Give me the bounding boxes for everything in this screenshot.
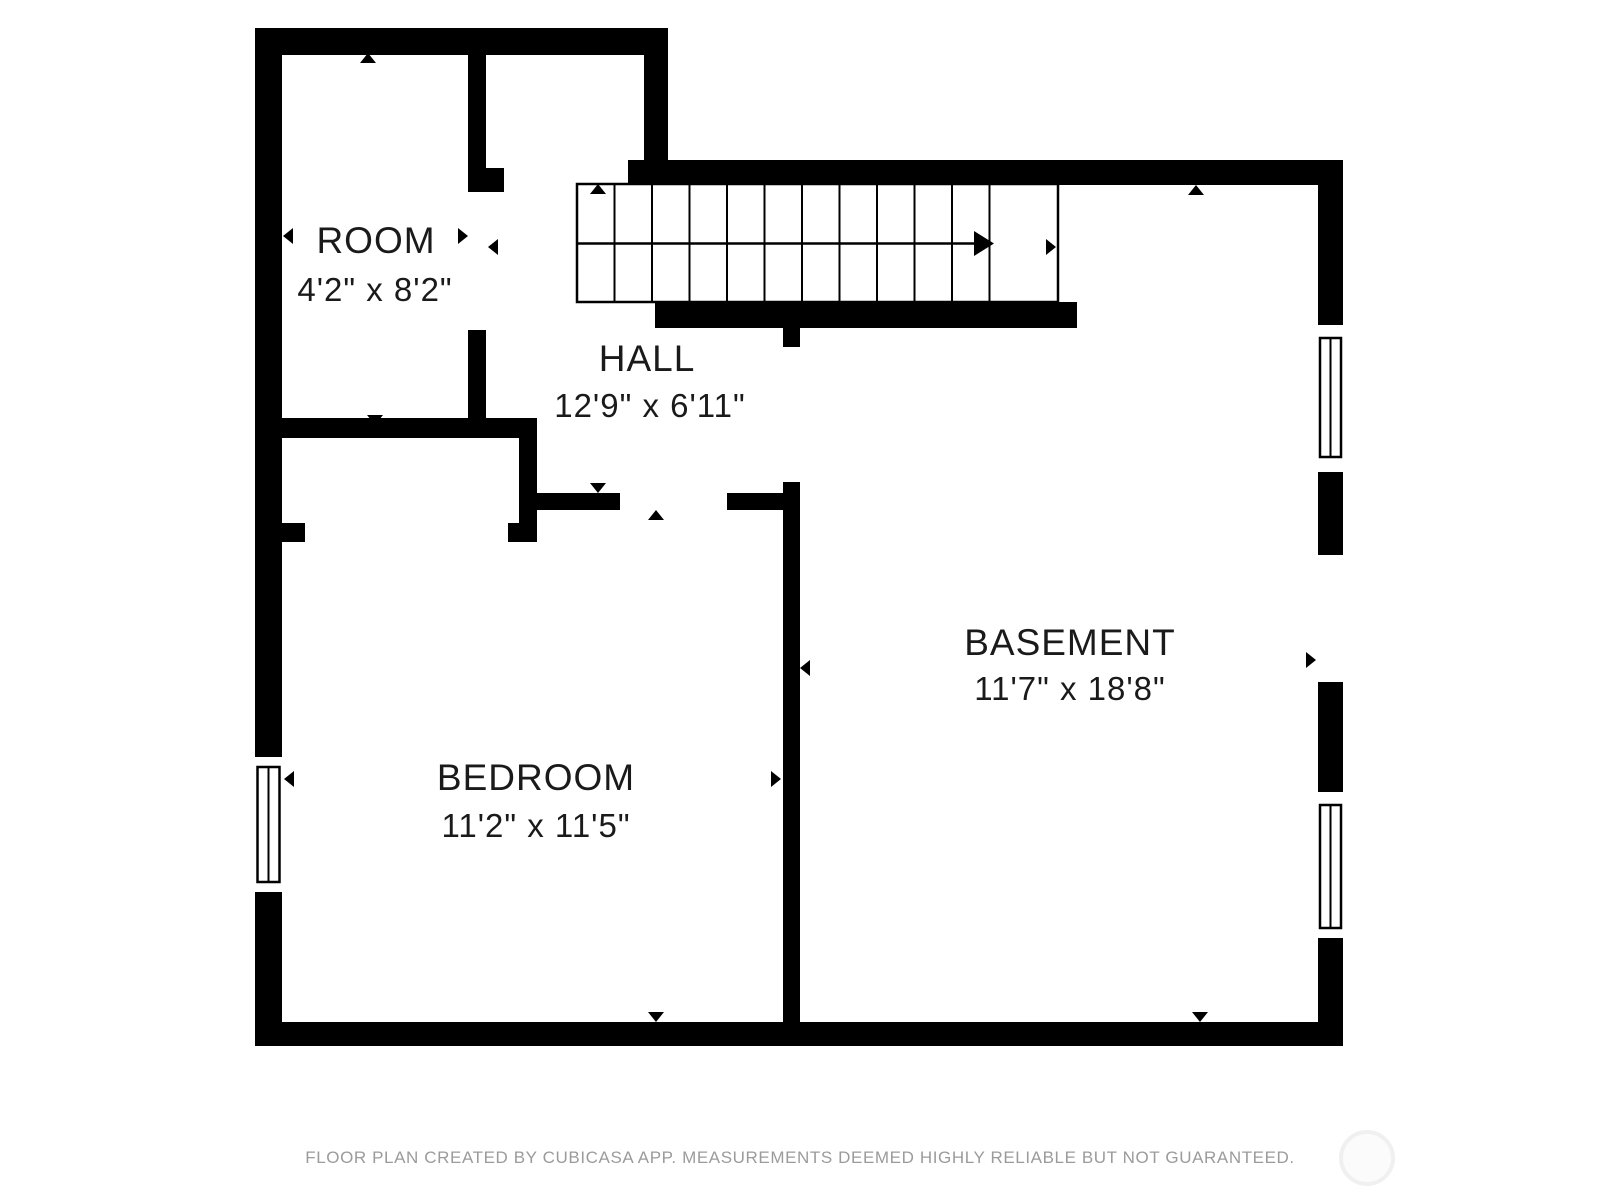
bedroom-dims: 11'2" x 11'5" bbox=[441, 807, 630, 844]
basement-dims: 11'7" x 18'8" bbox=[974, 670, 1166, 707]
wall-bedroom-north-left bbox=[537, 493, 620, 510]
wall-left-upper bbox=[255, 28, 282, 757]
room-label: ROOM bbox=[316, 220, 435, 261]
hall-dims: 12'9" x 6'11" bbox=[554, 387, 746, 424]
hall-label: HALL bbox=[599, 338, 696, 379]
wall-right-seg4 bbox=[1318, 938, 1343, 1046]
window-left-bedroom bbox=[258, 767, 280, 882]
footer-disclaimer: FLOOR PLAN CREATED BY CUBICASA APP. MEAS… bbox=[0, 1148, 1600, 1168]
hall-arrow-down-icon bbox=[590, 483, 606, 493]
wall-room-east-upper bbox=[468, 55, 486, 192]
wall-bedroom-basement-divider bbox=[783, 482, 800, 1022]
wall-top-upper-section bbox=[255, 28, 668, 55]
room-arrow-right-icon bbox=[458, 228, 468, 244]
wall-right-seg2 bbox=[1318, 472, 1343, 555]
wall-top-right-section bbox=[628, 160, 1343, 185]
window-right-basement-lower bbox=[1320, 805, 1341, 928]
bedroom-arrow-down-icon bbox=[648, 1012, 664, 1022]
floor-plan-canvas: ROOM 4'2" x 8'2" HALL 12'9" x 6'11" BEDR… bbox=[0, 0, 1600, 1200]
bedroom-arrow-right-icon bbox=[771, 771, 781, 787]
wall-stairs-south bbox=[655, 302, 1077, 328]
wall-divider-stub bbox=[783, 328, 800, 347]
hall-arrow-left-icon bbox=[488, 239, 498, 255]
wall-structure bbox=[255, 28, 1343, 1046]
wall-right-seg3 bbox=[1318, 682, 1343, 792]
wall-closet-west-stub bbox=[282, 523, 305, 542]
room-arrow-left-icon bbox=[283, 228, 293, 244]
staircase bbox=[577, 184, 1058, 302]
basement-arrow-up-icon bbox=[1188, 185, 1204, 195]
bedroom-arrow-left-icon bbox=[284, 771, 294, 787]
wall-upper-section-right bbox=[644, 28, 668, 160]
wall-room-door-jamb bbox=[486, 168, 504, 192]
wall-bedroom-north-right bbox=[727, 493, 783, 510]
room-dims: 4'2" x 8'2" bbox=[297, 271, 452, 308]
wall-closet-foot bbox=[508, 523, 537, 542]
bedroom-arrow-up-icon bbox=[648, 510, 664, 520]
basement-label: BASEMENT bbox=[964, 622, 1176, 663]
basement-arrow-right-icon bbox=[1306, 652, 1316, 668]
basement-arrow-down-icon bbox=[1192, 1012, 1208, 1022]
wall-room-south bbox=[255, 418, 537, 438]
wall-closet-east bbox=[519, 438, 537, 523]
window-right-basement-upper bbox=[1320, 338, 1341, 457]
wall-bottom bbox=[255, 1022, 1343, 1046]
wall-room-east-lower bbox=[468, 330, 486, 418]
basement-arrow-left-icon bbox=[800, 660, 810, 676]
bedroom-label: BEDROOM bbox=[437, 757, 635, 798]
